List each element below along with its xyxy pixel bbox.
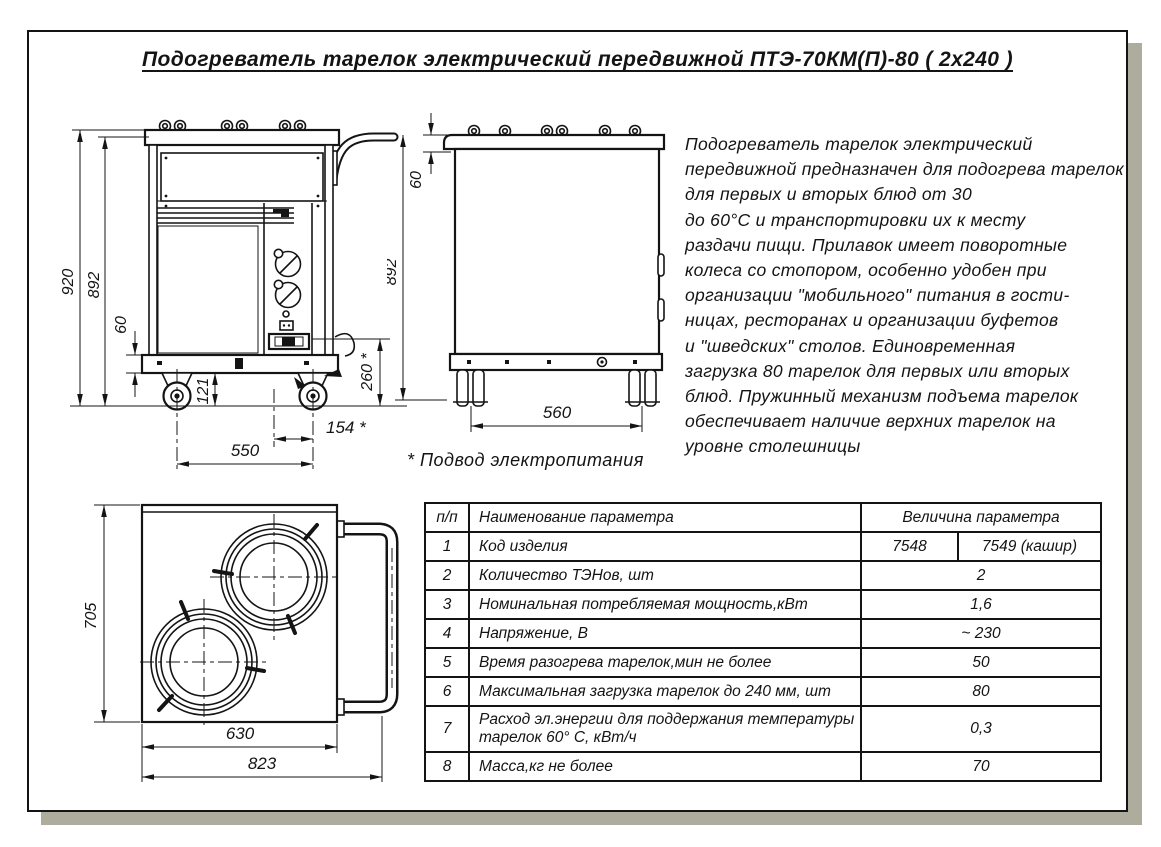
side-view-drawing: 60 892 560: [387, 102, 697, 447]
thermostat-knob: [274, 249, 300, 276]
dim-60: 60: [113, 316, 130, 334]
table-row: 6 Максимальная загрузка тарелок до 240 м…: [425, 677, 1101, 706]
description-line: раздачи пищи. Прилавок имеет поворотные: [685, 233, 1145, 258]
dim-892: 892: [86, 272, 103, 299]
hinge-tab: [658, 254, 664, 276]
cell-name: Код изделия: [469, 532, 861, 561]
header-num: п/п: [425, 503, 469, 532]
cell-value: 70: [861, 752, 1101, 781]
dim-892-side: 892: [387, 259, 400, 286]
description-line: блюд. Пружинный механизм подъема тарелок: [685, 384, 1145, 409]
hinge-tab: [658, 299, 664, 321]
dim-630: 630: [226, 724, 255, 743]
header-name: Наименование параметра: [469, 503, 861, 532]
table-row: 5 Время разогрева тарелок,мин не более 5…: [425, 648, 1101, 677]
dim-121: 121: [195, 378, 212, 405]
header-value: Величина параметра: [861, 503, 1101, 532]
front-view-drawing: 920 892 60 121 550 154 * 260 *: [42, 97, 417, 487]
caster-wheel-brake: [298, 369, 342, 410]
cell-name: Количество ТЭНов, шт: [469, 561, 861, 590]
dim-154: 154 *: [326, 418, 367, 437]
cell-num: 4: [425, 619, 469, 648]
thermostat-knob: [274, 280, 300, 307]
top-view-drawing: 705 630 823: [62, 490, 412, 790]
cell-num: 5: [425, 648, 469, 677]
description-line: колеса со стопором, особенно удобен при: [685, 258, 1145, 283]
front-dimensions: 920 892 60 121 550 154 * 260 *: [60, 130, 407, 464]
table-row: 4 Напряжение, В ~ 230: [425, 619, 1101, 648]
cell-name: Масса,кг не более: [469, 752, 861, 781]
description-line: загрузка 80 тарелок для первых или вторы…: [685, 359, 1145, 384]
cell-value: 1,6: [861, 590, 1101, 619]
table-row: 3 Номинальная потребляемая мощность,кВт …: [425, 590, 1101, 619]
table-row: 2 Количество ТЭНов, шт 2: [425, 561, 1101, 590]
cell-name: Напряжение, В: [469, 619, 861, 648]
handle: [333, 137, 394, 179]
cell-name: Время разогрева тарелок,мин не более: [469, 648, 861, 677]
description-line: ницах, ресторанах и организации буфетов: [685, 308, 1145, 333]
cell-value: 0,3: [861, 706, 1101, 752]
front-body: [142, 121, 394, 470]
table-row: 8 Масса,кг не более 70: [425, 752, 1101, 781]
table-row: 7 Расход эл.энергии для поддержания темп…: [425, 706, 1101, 752]
description-line: Подогреватель тарелок электрический: [685, 132, 1145, 157]
spec-table: п/п Наименование параметра Величина пара…: [424, 502, 1102, 782]
power-supply-note: * Подвод электропитания: [407, 450, 644, 471]
handle: [337, 529, 392, 707]
cell-num: 7: [425, 706, 469, 752]
dim-560: 560: [543, 403, 572, 422]
cell-num: 8: [425, 752, 469, 781]
description-line: до 60°С и транспортировки их к месту: [685, 208, 1145, 233]
wheel: [625, 370, 660, 406]
cell-name: Расход эл.энергии для поддержания темпер…: [469, 706, 861, 752]
top-body: [140, 505, 392, 725]
dim-920: 920: [60, 269, 77, 296]
dim-260: 260 *: [359, 353, 376, 392]
dim-60-side: 60: [408, 171, 425, 189]
cell-num: 2: [425, 561, 469, 590]
cell-value2: 7549 (кашир): [958, 532, 1101, 561]
table-header-row: п/п Наименование параметра Величина пара…: [425, 503, 1101, 532]
description-line: уровне столешницы: [685, 434, 1145, 459]
drawing-sheet: Подогреватель тарелок электрический пере…: [27, 30, 1128, 812]
wheel: [453, 370, 488, 406]
cell-value: ~ 230: [861, 619, 1101, 648]
description-line: для первых и вторых блюд от 30: [685, 182, 1145, 207]
control-panel: [264, 203, 312, 355]
description-text: Подогреватель тарелок электрический пере…: [685, 132, 1145, 460]
page-title: Подогреватель тарелок электрический пере…: [29, 48, 1126, 72]
side-body: [444, 126, 664, 407]
cell-name: Номинальная потребляемая мощность,кВт: [469, 590, 861, 619]
dim-823: 823: [248, 754, 277, 773]
cell-value: 80: [861, 677, 1101, 706]
dim-550: 550: [231, 441, 260, 460]
cell-name: Максимальная загрузка тарелок до 240 мм,…: [469, 677, 861, 706]
cell-num: 1: [425, 532, 469, 561]
cell-value: 7548: [861, 532, 958, 561]
cell-value: 50: [861, 648, 1101, 677]
description-line: передвижной предназначен для подогрева т…: [685, 157, 1145, 182]
table-row: 1 Код изделия 7548 7549 (кашир): [425, 532, 1101, 561]
cell-value: 2: [861, 561, 1101, 590]
description-line: и "шведских" столов. Единовременная: [685, 334, 1145, 359]
description-line: организации "мобильного" питания в гости…: [685, 283, 1145, 308]
indicator-lamp: [283, 311, 289, 317]
lift-lever-icon: [273, 209, 289, 217]
description-line: обеспечивает наличие верхних тарелок на: [685, 409, 1145, 434]
cell-num: 3: [425, 590, 469, 619]
switch: [280, 321, 293, 330]
cell-num: 6: [425, 677, 469, 706]
dim-705: 705: [83, 603, 100, 630]
